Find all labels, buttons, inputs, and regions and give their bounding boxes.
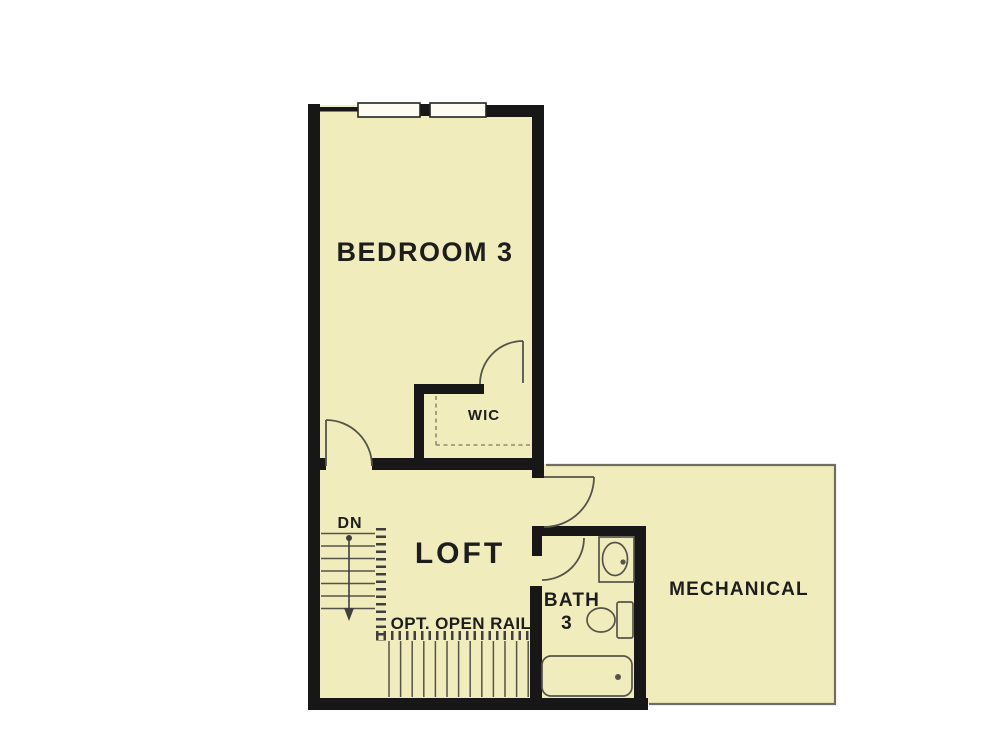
bedroom3-label: BEDROOM 3 xyxy=(336,237,513,267)
floor-plan-canvas: BEDROOM 3 WIC DN LOFT OPT. OPEN RAIL BAT… xyxy=(0,0,1000,750)
room-bedroom3-area xyxy=(312,105,538,465)
wall-bath-left xyxy=(530,586,542,710)
sink xyxy=(599,537,634,582)
floor-plan-page: BEDROOM 3 WIC DN LOFT OPT. OPEN RAIL BAT… xyxy=(0,0,1000,750)
mechanical-label: MECHANICAL xyxy=(669,579,809,600)
wall-bottom xyxy=(308,698,648,710)
bathtub xyxy=(542,656,632,696)
wall-left xyxy=(308,104,320,710)
wall-top-thin xyxy=(308,107,362,112)
loft-label: LOFT xyxy=(415,537,505,570)
wall-doorjamb-mechanical xyxy=(532,466,544,478)
bath-label-line1: BATH xyxy=(544,590,600,611)
stairs-dn-label: DN xyxy=(337,515,362,532)
wall-bath-doorjamb xyxy=(532,536,542,556)
room-loft-area xyxy=(312,462,540,702)
wall-bedroom-bottom-left xyxy=(308,458,326,470)
bedroom-windows xyxy=(358,103,486,117)
open-rail-label: OPT. OPEN RAIL xyxy=(391,614,532,633)
wall-bedroom-right xyxy=(532,105,544,470)
wall-wic-left xyxy=(414,384,424,462)
window-left xyxy=(358,103,420,117)
wall-bath-right xyxy=(634,526,646,710)
wall-bedroom-bottom-right xyxy=(372,458,544,470)
wic-label: WIC xyxy=(468,407,500,424)
window-right xyxy=(430,103,486,117)
wall-wic-top xyxy=(414,384,484,394)
bath-label-line2: 3 xyxy=(561,613,573,634)
